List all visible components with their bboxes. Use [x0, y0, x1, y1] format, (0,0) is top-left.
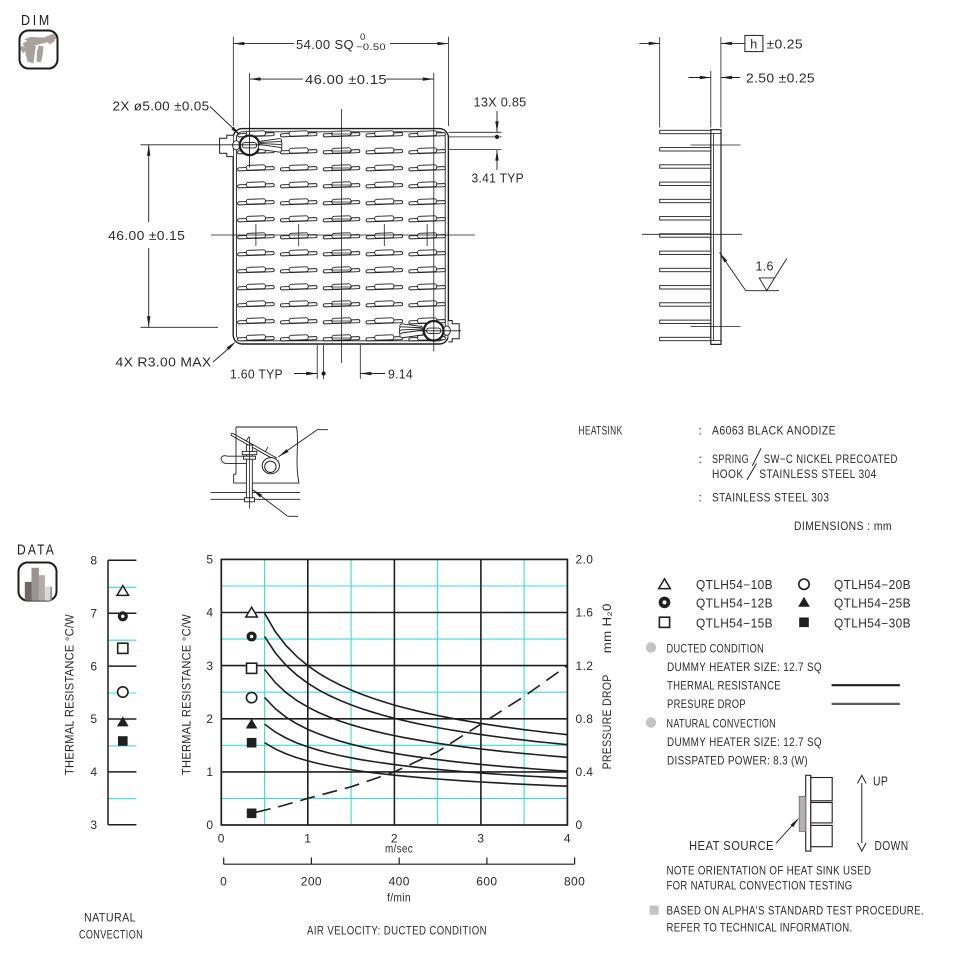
svg-text:2.50 ±0.25: 2.50 ±0.25: [746, 71, 815, 85]
svg-text:DUMMY HEATER SIZE: 12.7 SQ: DUMMY HEATER SIZE: 12.7 SQ: [667, 660, 822, 674]
svg-text:13X 0.85: 13X 0.85: [474, 96, 527, 110]
svg-text:1.60 TYP: 1.60 TYP: [230, 368, 283, 382]
svg-text:CONVECTION: CONVECTION: [79, 928, 143, 942]
svg-text:±0.25: ±0.25: [767, 37, 804, 51]
svg-text:0.4: 0.4: [576, 765, 594, 779]
svg-text::: :: [699, 423, 703, 437]
svg-text:6: 6: [90, 659, 97, 673]
svg-text:DUMMY HEATER SIZE: 12.7 SQ: DUMMY HEATER SIZE: 12.7 SQ: [667, 735, 822, 749]
svg-text:400: 400: [389, 875, 410, 889]
svg-text:DIMENSIONS : mm: DIMENSIONS : mm: [794, 519, 892, 533]
svg-text:DOWN: DOWN: [875, 839, 909, 853]
svg-text:8: 8: [90, 554, 97, 568]
svg-text::: :: [699, 452, 703, 466]
svg-text:3.41 TYP: 3.41 TYP: [472, 172, 525, 186]
svg-text:QTLH54−12B: QTLH54−12B: [696, 597, 773, 611]
svg-text:4: 4: [564, 832, 571, 846]
svg-text:0.8: 0.8: [576, 712, 594, 726]
svg-text:THERMAL RESISTANCE °C/W: THERMAL RESISTANCE °C/W: [65, 614, 77, 775]
svg-text:2: 2: [206, 712, 213, 726]
svg-text:DUCTED CONDITION: DUCTED CONDITION: [667, 642, 765, 656]
svg-text:HOOK: HOOK: [712, 467, 744, 481]
svg-text:QTLH54−20B: QTLH54−20B: [834, 578, 911, 592]
svg-text:DISSPATED POWER: 8.3 (W): DISSPATED POWER: 8.3 (W): [667, 754, 808, 768]
svg-text:REFER TO TECHNICAL INFORMATION: REFER TO TECHNICAL INFORMATION.: [667, 920, 853, 934]
svg-text:mm H₂0: mm H₂0: [602, 603, 614, 653]
svg-text:BASED ON ALPHA'S STANDARD TEST: BASED ON ALPHA'S STANDARD TEST PROCEDURE…: [667, 903, 925, 917]
svg-text:3: 3: [90, 818, 97, 832]
svg-text:2X ø5.00 ±0.05: 2X ø5.00 ±0.05: [113, 100, 210, 114]
svg-text:46.00 ±0.15: 46.00 ±0.15: [305, 73, 387, 87]
svg-text:NOTE ORIENTATION OF HEAT SINK: NOTE ORIENTATION OF HEAT SINK USED: [667, 864, 872, 878]
svg-text:HEATSINK: HEATSINK: [579, 423, 623, 437]
svg-text:600: 600: [476, 875, 497, 889]
svg-text:54.00 SQ: 54.00 SQ: [296, 37, 354, 52]
svg-text:200: 200: [301, 875, 322, 889]
svg-text:5: 5: [206, 553, 213, 567]
svg-text:4: 4: [206, 606, 213, 620]
svg-text:1.2: 1.2: [576, 659, 594, 673]
svg-text:A6063 BLACK ANODIZE: A6063 BLACK ANODIZE: [712, 423, 836, 437]
svg-text:DIM: DIM: [21, 13, 52, 29]
svg-text:3: 3: [206, 659, 213, 673]
svg-text:f/min: f/min: [387, 891, 411, 905]
svg-text:PRESSURE DROP: PRESSURE DROP: [602, 674, 614, 769]
svg-text::: :: [699, 490, 703, 504]
svg-text:QTLH54−25B: QTLH54−25B: [834, 597, 911, 611]
svg-text:FOR NATURAL CONVECTION TESTING: FOR NATURAL CONVECTION TESTING: [667, 879, 853, 893]
svg-text:−0.50: −0.50: [356, 42, 386, 53]
svg-text:DATA: DATA: [17, 543, 56, 559]
svg-text:9.14: 9.14: [388, 368, 413, 382]
svg-text:NATURAL CONVECTION: NATURAL CONVECTION: [667, 717, 777, 731]
svg-text:QTLH54−15B: QTLH54−15B: [696, 616, 773, 630]
svg-text:1.6: 1.6: [756, 259, 774, 273]
svg-text:1: 1: [206, 765, 213, 779]
svg-text:HEAT SOURCE: HEAT SOURCE: [689, 839, 774, 853]
svg-text:0: 0: [576, 818, 583, 832]
svg-text:46.00 ±0.15: 46.00 ±0.15: [108, 229, 185, 243]
svg-text:4: 4: [90, 765, 97, 779]
svg-text:QTLH54−30B: QTLH54−30B: [834, 616, 911, 630]
svg-text:0: 0: [218, 832, 225, 846]
svg-text:THERMAL RESISTANCE: THERMAL RESISTANCE: [667, 678, 781, 692]
svg-text:AIR VELOCITY: DUCTED CONDITIO: AIR VELOCITY: DUCTED CONDITION: [307, 924, 487, 938]
svg-text:800: 800: [564, 875, 585, 889]
svg-text:1.6: 1.6: [576, 606, 594, 620]
svg-text:THERMAL RESISTANCE °C/W: THERMAL RESISTANCE °C/W: [182, 614, 194, 775]
svg-text:SPRING: SPRING: [712, 452, 749, 466]
svg-text:2.0: 2.0: [576, 553, 594, 567]
svg-text:h: h: [750, 37, 757, 51]
svg-text:UP: UP: [873, 774, 888, 788]
svg-text:0: 0: [206, 818, 213, 832]
svg-text:STAINLESS STEEL 304: STAINLESS STEEL 304: [759, 467, 876, 481]
svg-text:4X R3.00 MAX: 4X R3.00 MAX: [116, 356, 212, 370]
svg-text:1: 1: [304, 832, 311, 846]
svg-text:7: 7: [90, 606, 97, 620]
svg-text:3: 3: [477, 832, 484, 846]
svg-text:5: 5: [90, 712, 97, 726]
svg-text:STAINLESS STEEL 303: STAINLESS STEEL 303: [712, 490, 829, 504]
svg-text:m/sec: m/sec: [385, 842, 413, 856]
svg-text:0: 0: [220, 875, 227, 889]
svg-text:SW−C NICKEL PRECOATED: SW−C NICKEL PRECOATED: [764, 452, 898, 466]
svg-text:QTLH54−10B: QTLH54−10B: [696, 578, 773, 592]
svg-text:NATURAL: NATURAL: [84, 911, 136, 925]
svg-text:PRESURE DROP: PRESURE DROP: [667, 697, 746, 711]
